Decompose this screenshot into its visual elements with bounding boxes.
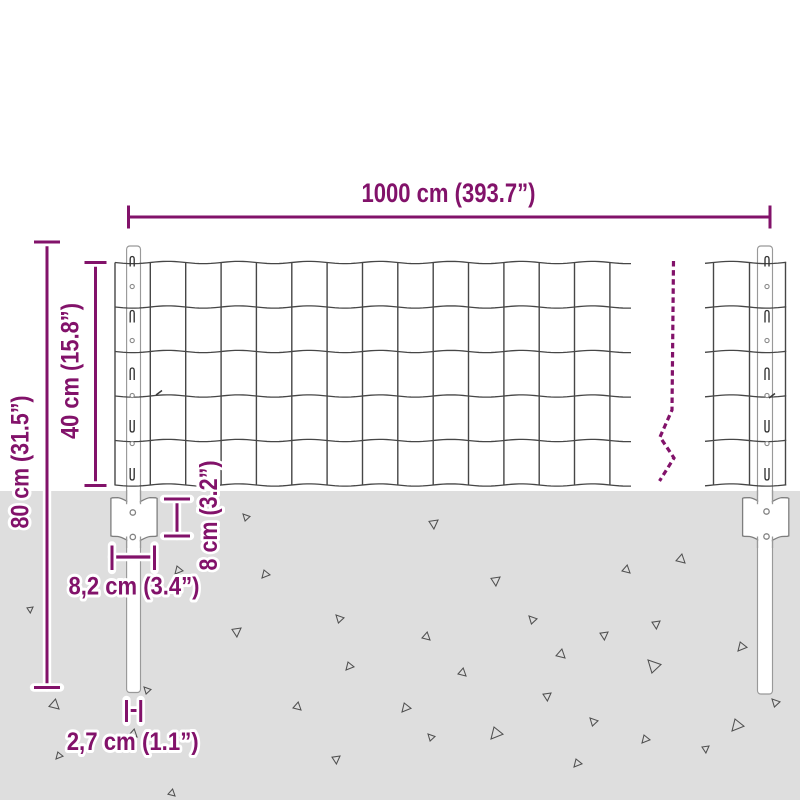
svg-text:2,7 cm (1.1”): 2,7 cm (1.1”) xyxy=(67,728,199,756)
svg-text:40 cm (15.8”): 40 cm (15.8”) xyxy=(57,303,85,439)
svg-text:8,2 cm (3.4”): 8,2 cm (3.4”) xyxy=(69,573,200,601)
svg-text:1000 cm (393.7”): 1000 cm (393.7”) xyxy=(362,178,536,208)
svg-text:80 cm (31.5”): 80 cm (31.5”) xyxy=(6,396,34,529)
svg-text:8 cm (3.2”): 8 cm (3.2”) xyxy=(195,461,223,571)
